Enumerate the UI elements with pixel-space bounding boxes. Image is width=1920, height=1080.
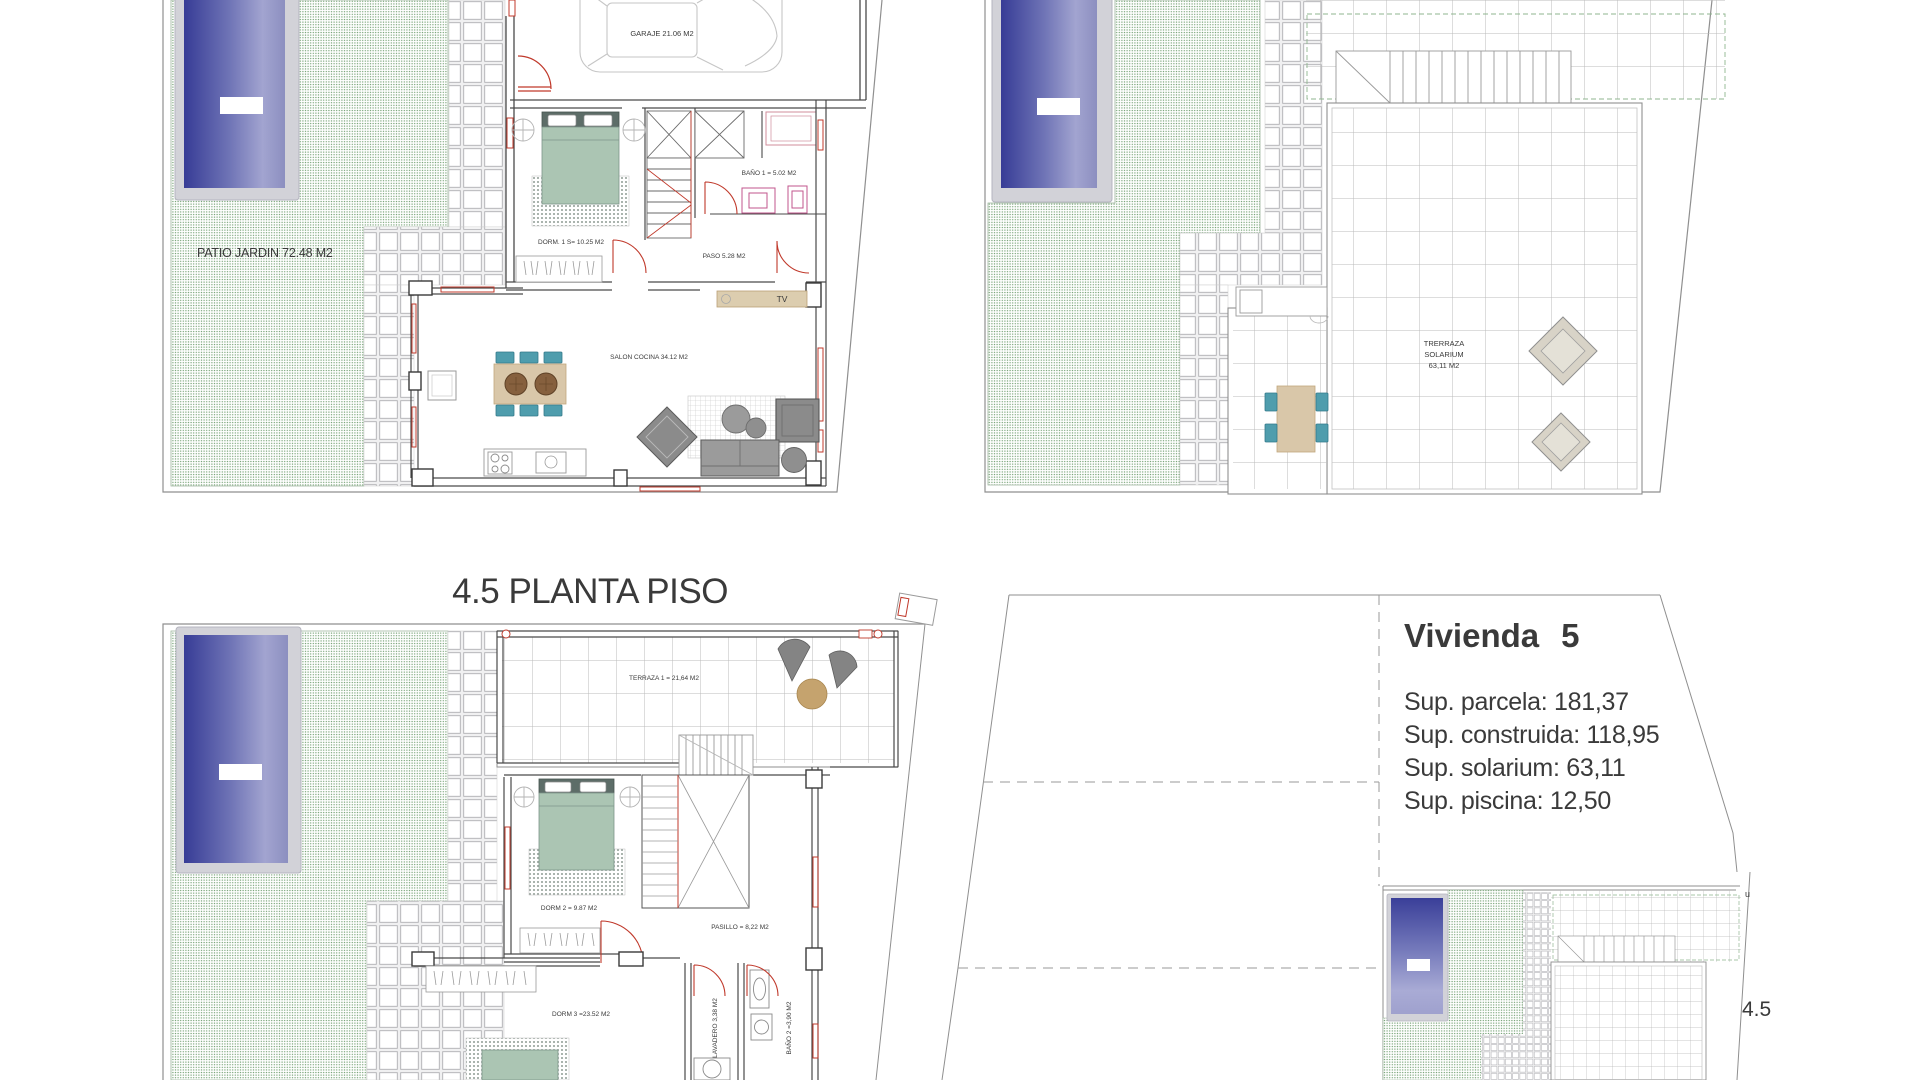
svg-text:SALON COCINA 34.12 M2: SALON COCINA 34.12 M2 (610, 354, 688, 361)
svg-text:u: u (1745, 889, 1750, 899)
svg-text:DORM 2 = 9.87 M2: DORM 2 = 9.87 M2 (541, 905, 598, 912)
svg-text:BAÑO 2 =3,90 M2: BAÑO 2 =3,90 M2 (784, 1001, 793, 1054)
svg-text:BAÑO 1 = 5.02 M2: BAÑO 1 = 5.02 M2 (742, 168, 797, 177)
svg-text:GARAJE 21.06 M2: GARAJE 21.06 M2 (630, 29, 693, 38)
svg-text:PASILLO = 8,22 M2: PASILLO = 8,22 M2 (711, 924, 769, 931)
svg-text:Sup. parcela: 181,37: Sup. parcela: 181,37 (1404, 688, 1629, 716)
svg-text:LAVADERO 3,38 M2: LAVADERO 3,38 M2 (712, 998, 719, 1058)
svg-text:PASO 5.28 M2: PASO 5.28 M2 (703, 253, 746, 260)
svg-text:Sup. solarium: 63,11: Sup. solarium: 63,11 (1404, 754, 1625, 782)
svg-text:Sup. piscina: 12,50: Sup. piscina: 12,50 (1404, 787, 1611, 815)
svg-text:TERRAZA 1 = 21,64 M2: TERRAZA 1 = 21,64 M2 (629, 675, 699, 682)
svg-text:TRERRAZA: TRERRAZA (1424, 339, 1464, 348)
svg-text:4.5 PLANTA PISO: 4.5 PLANTA PISO (452, 572, 728, 611)
svg-text:PATIO JARDIN 72.48 M2: PATIO JARDIN 72.48 M2 (197, 246, 333, 260)
svg-text:4.5: 4.5 (1742, 998, 1771, 1021)
svg-text:DORM. 1 S= 10.25 M2: DORM. 1 S= 10.25 M2 (538, 239, 604, 246)
svg-text:SOLARIUM: SOLARIUM (1424, 350, 1463, 359)
svg-text:TV: TV (777, 294, 788, 304)
svg-text:DORM 3 =23.52 M2: DORM 3 =23.52 M2 (552, 1011, 610, 1018)
svg-text:63,11 M2: 63,11 M2 (1429, 361, 1460, 370)
svg-text:Sup. construida: 118,95: Sup. construida: 118,95 (1404, 721, 1659, 749)
